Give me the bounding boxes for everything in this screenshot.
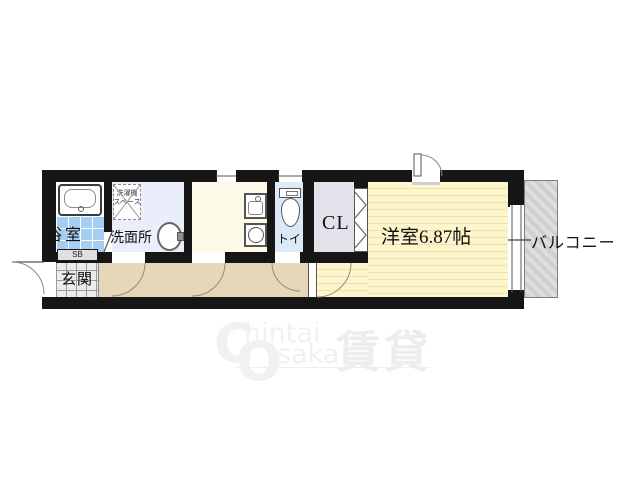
watermark-kanji: 賃貸 — [336, 316, 432, 380]
toilet-tank-icon — [279, 188, 301, 198]
wall-right — [508, 290, 524, 309]
wall-kitchen-toilet — [267, 182, 275, 263]
closet-label: CL — [322, 212, 350, 235]
wall-top — [42, 170, 216, 182]
wall-left — [42, 170, 56, 262]
wall-toilet-closet — [303, 182, 314, 263]
toilet-lid-icon — [286, 191, 298, 196]
kitchen-sink-basin — [248, 201, 263, 215]
toilet-window — [278, 170, 304, 182]
washing-machine-space-label: 洗濯機 スペース — [113, 189, 141, 207]
wall-bottom — [42, 297, 522, 309]
kitchen-faucet-icon — [255, 196, 261, 202]
shoe-box: SB — [57, 249, 98, 261]
kitchen-sink-icon — [244, 193, 267, 219]
watermark-underline — [235, 367, 430, 368]
floorplan-canvas: 洗濯機 スペース SB 浴室 洗面所 トイレ C — [0, 0, 640, 480]
balcony-window — [510, 205, 524, 292]
western-room-entry-door-gap — [412, 170, 440, 185]
western-room-label: 洋室6.87帖 — [381, 222, 471, 249]
western-room-floor-lower — [317, 263, 368, 297]
wall-washroom-kitchen — [184, 182, 192, 263]
laundry-line1: 洗濯機 — [117, 190, 138, 197]
washroom-label: 洗面所 — [110, 227, 152, 247]
washbasin-tap-icon — [177, 232, 184, 241]
wall-right — [508, 170, 524, 207]
watermark-o: O — [236, 330, 282, 393]
entrance-label: 玄関 — [56, 268, 98, 289]
entrance-door-opening — [42, 262, 56, 297]
laundry-line2: スペース — [113, 199, 140, 206]
wall-top — [302, 170, 412, 182]
bathtub-icon — [58, 184, 102, 216]
wall-bathroom-washroom — [104, 182, 112, 232]
stove-burner-icon — [248, 227, 264, 243]
shoe-box-label: SB — [72, 250, 83, 259]
wall-top — [236, 170, 278, 182]
balcony-label: バルコニー — [531, 229, 616, 253]
kitchen-window — [216, 170, 238, 182]
toilet-label: トイレ — [277, 230, 313, 247]
bathtub-drain — [78, 206, 84, 212]
entrance-door-arc — [12, 262, 44, 294]
wall-corridor — [225, 252, 267, 263]
closet-folding-door — [354, 188, 368, 252]
watermark-saka: saka — [277, 339, 339, 370]
bathroom-label: 浴室 — [46, 221, 84, 245]
wall-corridor — [300, 252, 368, 263]
wall-corridor — [145, 252, 184, 263]
stove-icon — [244, 223, 267, 247]
western-room-door — [308, 263, 317, 297]
